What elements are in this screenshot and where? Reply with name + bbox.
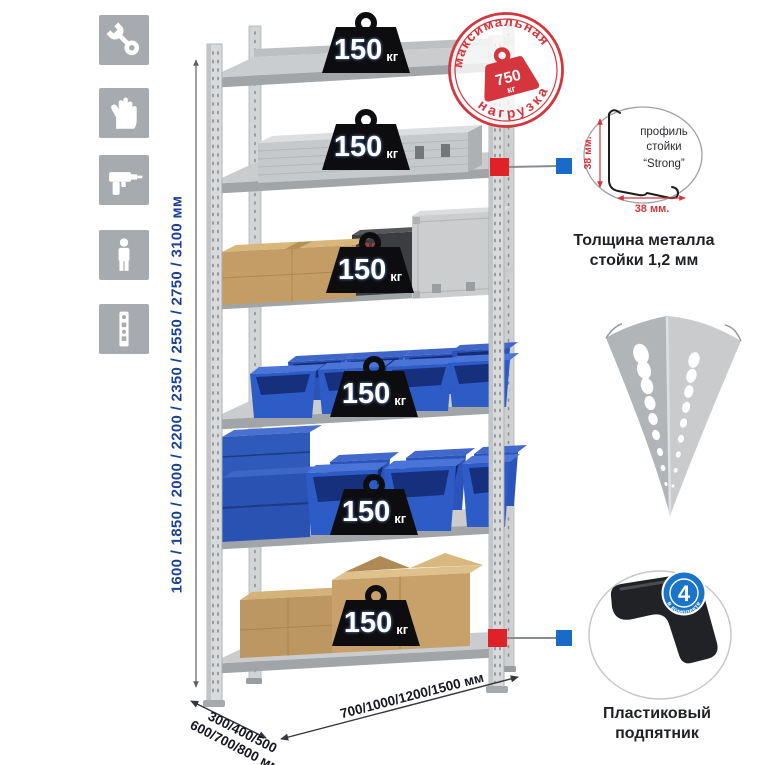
back-left-post	[246, 26, 262, 684]
plastic-foot-circle: 4 в комплекте	[589, 571, 731, 699]
load-value: 150	[342, 380, 390, 409]
red-marker-bottom	[488, 629, 507, 647]
profile-label-line2: стойки	[646, 141, 681, 153]
load-unit: кг	[390, 269, 402, 284]
max-load-stamp: максимальная нагрузка 750 кг	[437, 1, 575, 139]
wrench-glyph	[102, 18, 146, 62]
load-value: 150	[342, 498, 390, 527]
quantity-badge: 4 в комплекте	[663, 572, 706, 617]
shelf-load-badge-6: 150кг	[332, 584, 420, 646]
profile-label-line1: профиль	[640, 126, 688, 138]
load-value: 150	[334, 36, 382, 65]
profile-thickness-caption: Толщина металла стойки 1,2 мм	[548, 231, 740, 272]
profile-label-line3: “Strong”	[643, 158, 685, 170]
shelf-load-badge-4: 150кг	[330, 355, 418, 417]
rack-heights-label: 1600 / 1850 / 2000 / 2200 / 2350 / 2550 …	[169, 95, 186, 695]
load-unit: кг	[386, 49, 398, 64]
person-icon	[99, 230, 149, 280]
angle-post-image	[606, 316, 741, 516]
red-marker-top	[490, 158, 509, 176]
load-unit: кг	[394, 393, 406, 408]
shelf-load-badge-5: 150кг	[330, 473, 418, 535]
width-dimension-line	[281, 677, 518, 739]
foot-callout-connector	[488, 629, 572, 647]
load-unit: кг	[396, 622, 408, 637]
gloves-glyph	[103, 92, 145, 134]
load-unit: кг	[394, 511, 406, 526]
load-unit: кг	[386, 146, 398, 161]
profile-vertical-dim: 38 мм.	[582, 136, 594, 169]
blue-marker-top	[556, 158, 572, 174]
thickness-caption-line1: Толщина металла	[548, 231, 740, 251]
profile-horizontal-dim: 38 мм.	[635, 203, 670, 215]
front-left-post	[203, 44, 225, 707]
load-value: 150	[344, 609, 392, 638]
plastic-foot-caption: Пластиковый подпятник	[562, 704, 752, 745]
shelf-load-badge-3: 150кг	[326, 231, 414, 293]
shelf-6-cardboard-box-left	[240, 587, 346, 658]
profile-callout-connector	[490, 158, 572, 176]
drill-icon	[99, 155, 149, 205]
gloves-icon	[99, 88, 149, 138]
load-value: 150	[334, 133, 382, 162]
product-infographic: максимальная нагрузка 750 кг 38 мм. 38 м…	[0, 0, 765, 765]
blue-marker-bottom	[556, 630, 572, 646]
shelf-load-badge-1: 150кг	[322, 11, 410, 73]
drill-glyph	[103, 159, 145, 201]
foot-caption-line1: Пластиковый	[562, 704, 752, 724]
badge-quantity-value: 4	[678, 581, 691, 606]
shelf-load-badge-2: 150кг	[322, 108, 410, 170]
thickness-caption-line2: стойки 1,2 мм	[548, 251, 740, 271]
foot-caption-line2: подпятник	[562, 724, 752, 744]
person-glyph	[104, 235, 144, 275]
wrench-icon	[99, 15, 149, 65]
rack-profile-icon	[99, 304, 149, 354]
profile-detail-circle: 38 мм. 38 мм. профиль стойки “Strong”	[582, 107, 702, 215]
rack-profile-glyph	[102, 307, 146, 351]
load-value: 150	[338, 256, 386, 285]
